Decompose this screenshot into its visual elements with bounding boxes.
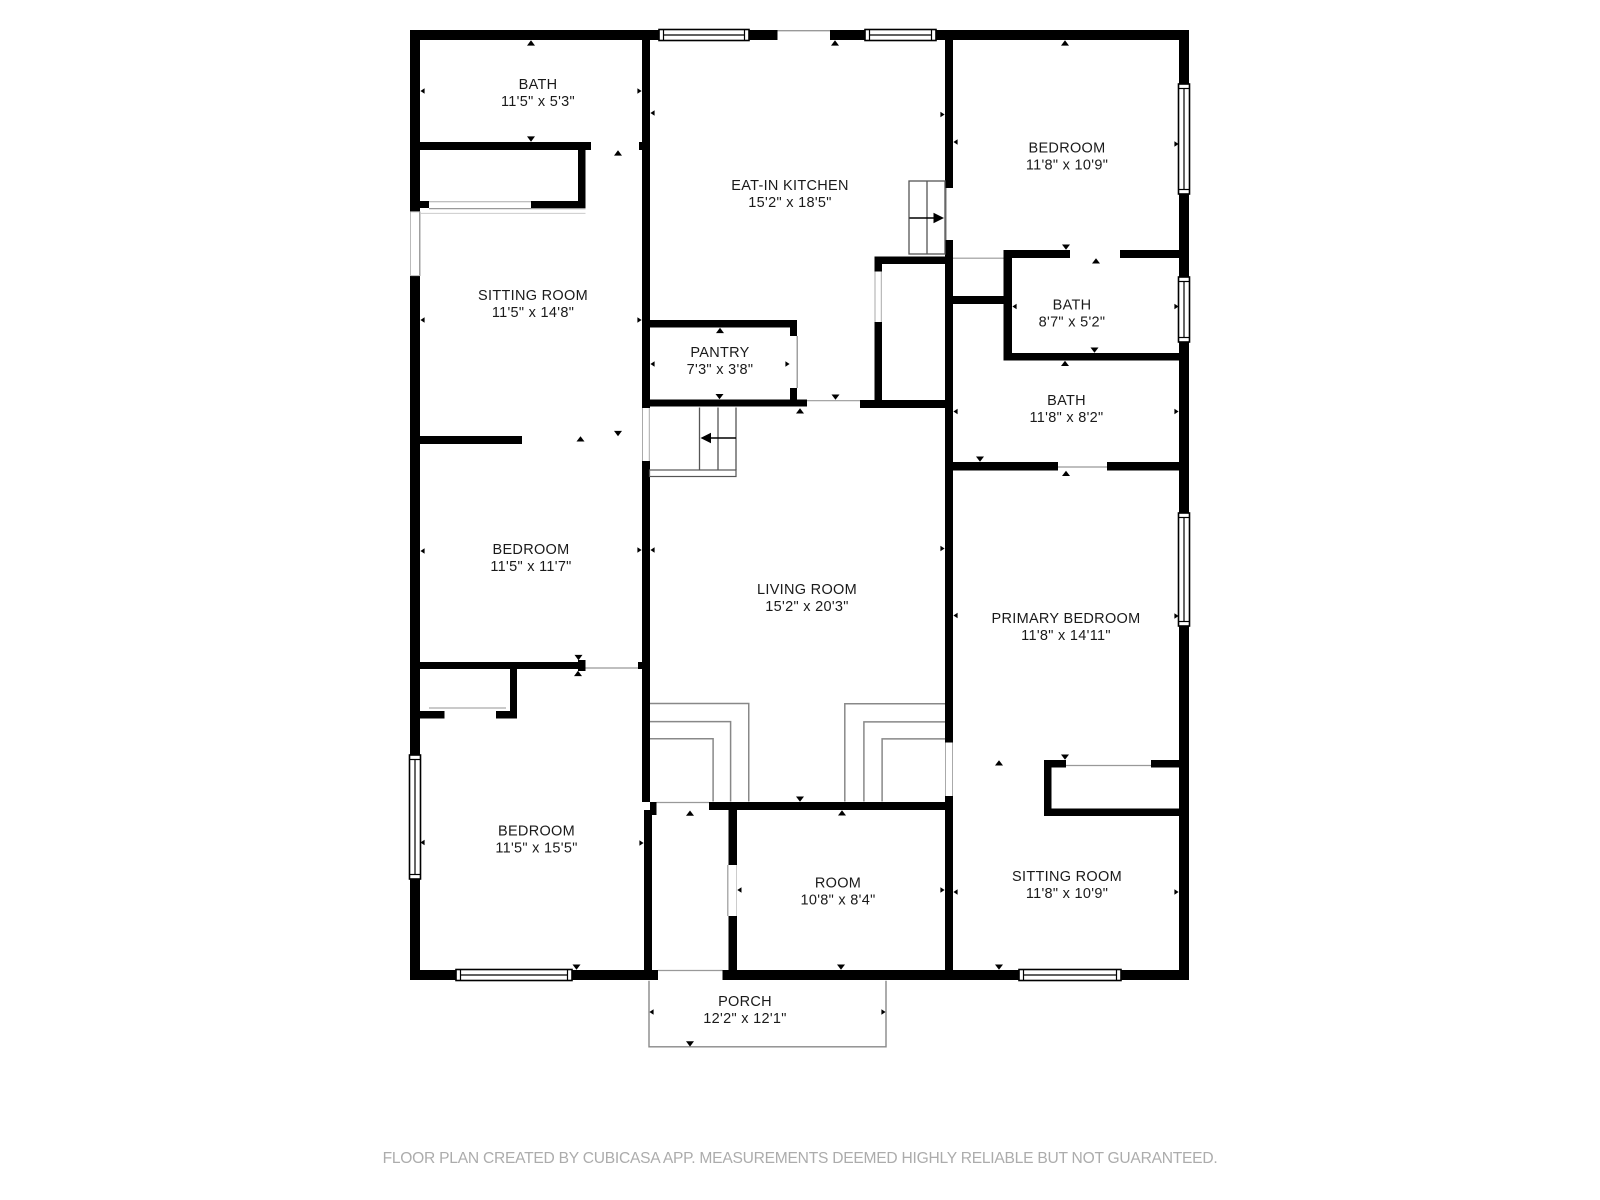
svg-text:PANTRY: PANTRY (690, 345, 749, 361)
svg-text:11'5" x 14'8": 11'5" x 14'8" (492, 305, 574, 321)
svg-text:11'8" x 14'11": 11'8" x 14'11" (1021, 628, 1111, 644)
svg-text:12'2" x 12'1": 12'2" x 12'1" (703, 1011, 786, 1027)
svg-text:15'2" x 18'5": 15'2" x 18'5" (748, 195, 831, 211)
svg-text:11'5" x 15'5": 11'5" x 15'5" (495, 841, 577, 857)
svg-text:PRIMARY BEDROOM: PRIMARY BEDROOM (992, 611, 1141, 627)
svg-text:PORCH: PORCH (718, 994, 772, 1010)
svg-text:8'7" x 5'2": 8'7" x 5'2" (1039, 315, 1106, 331)
svg-text:15'2" x 20'3": 15'2" x 20'3" (765, 599, 848, 615)
svg-text:11'8" x 10'9": 11'8" x 10'9" (1026, 886, 1108, 902)
svg-text:EAT-IN KITCHEN: EAT-IN KITCHEN (731, 178, 849, 194)
svg-text:ROOM: ROOM (815, 876, 861, 892)
svg-text:7'3" x 3'8": 7'3" x 3'8" (687, 362, 754, 378)
svg-text:BEDROOM: BEDROOM (1028, 141, 1105, 157)
svg-text:SITTING ROOM: SITTING ROOM (478, 288, 588, 304)
svg-text:BATH: BATH (1047, 393, 1086, 409)
svg-text:11'8" x 8'2": 11'8" x 8'2" (1030, 410, 1104, 426)
svg-text:11'8" x 10'9": 11'8" x 10'9" (1026, 158, 1108, 174)
svg-text:BEDROOM: BEDROOM (498, 824, 575, 840)
svg-text:SITTING ROOM: SITTING ROOM (1012, 869, 1122, 885)
svg-text:LIVING ROOM: LIVING ROOM (757, 582, 857, 598)
svg-text:BATH: BATH (1053, 298, 1092, 314)
svg-text:10'8" x 8'4": 10'8" x 8'4" (800, 893, 875, 909)
svg-text:11'5" x 5'3": 11'5" x 5'3" (501, 94, 575, 110)
svg-text:BEDROOM: BEDROOM (492, 542, 569, 558)
svg-text:BATH: BATH (519, 77, 558, 93)
svg-text:11'5" x 11'7": 11'5" x 11'7" (490, 559, 571, 575)
